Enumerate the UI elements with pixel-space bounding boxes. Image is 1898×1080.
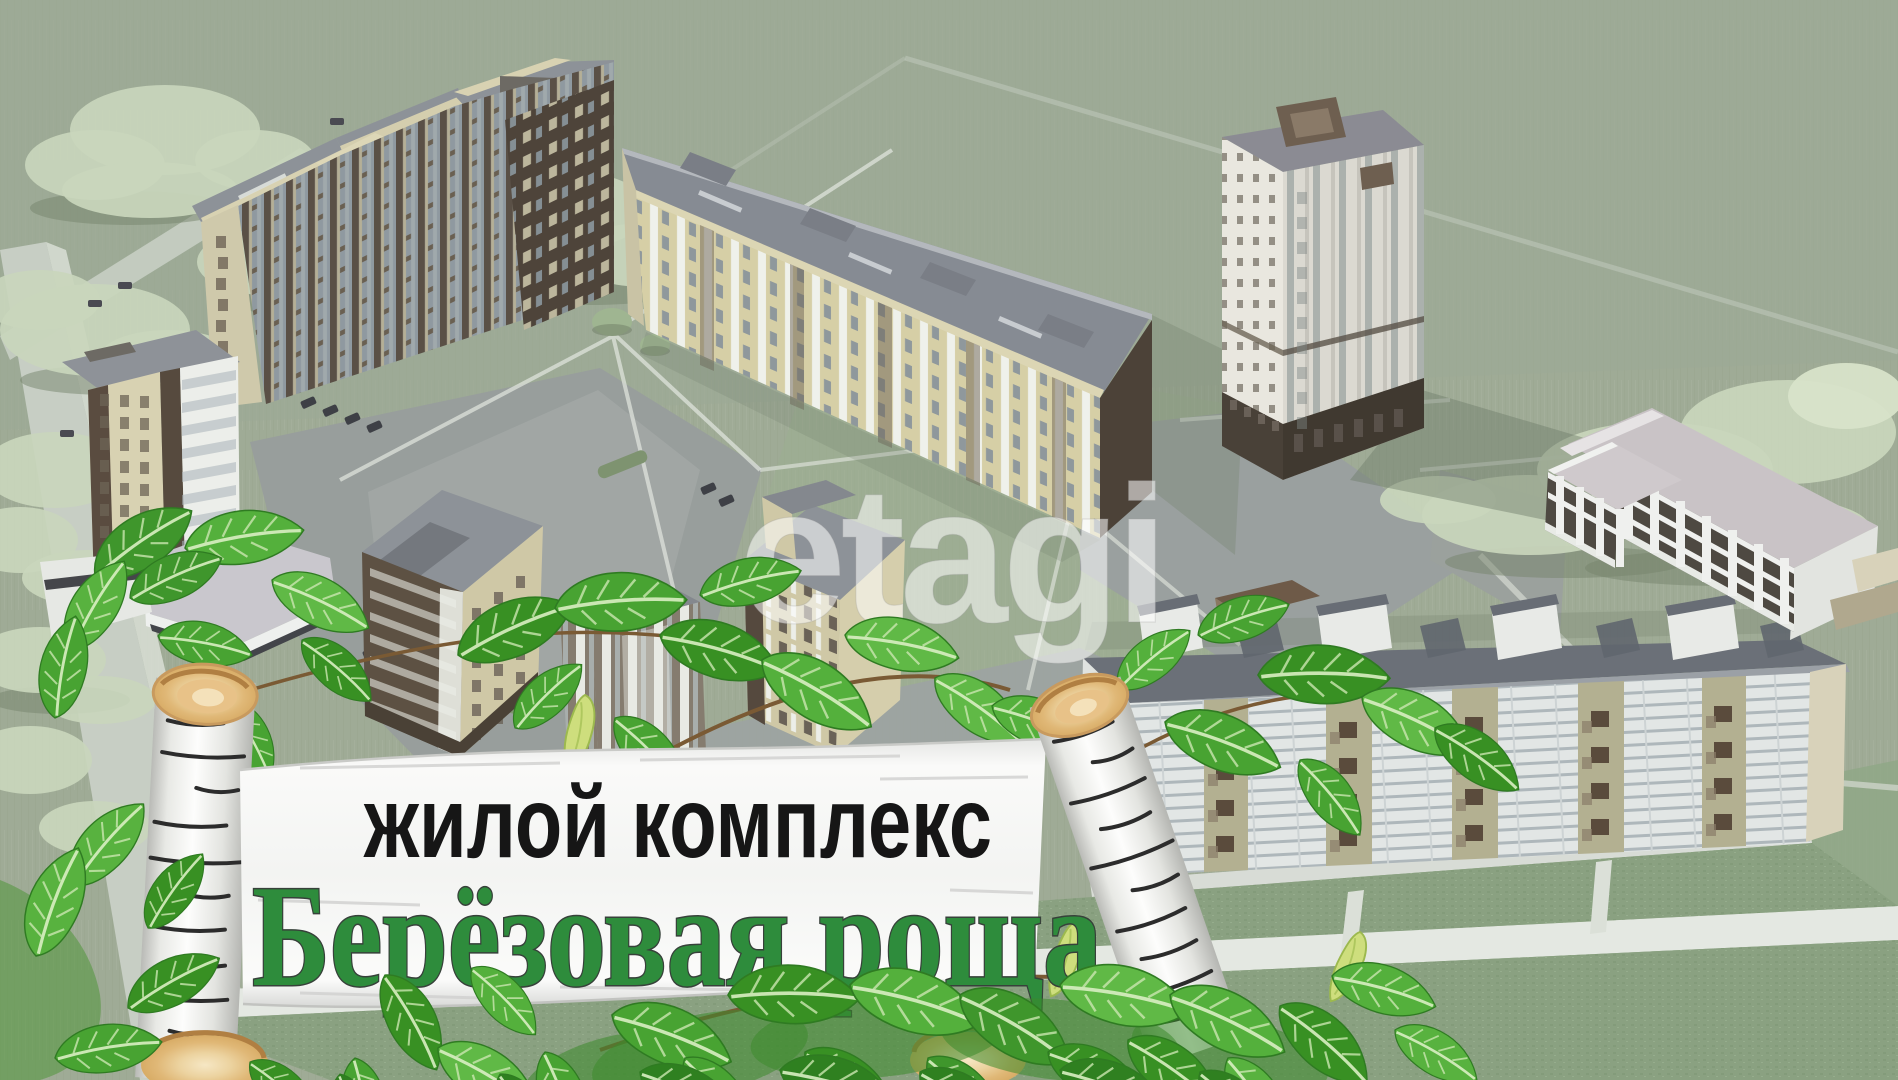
svg-text:etagi: etagi: [738, 446, 1163, 664]
